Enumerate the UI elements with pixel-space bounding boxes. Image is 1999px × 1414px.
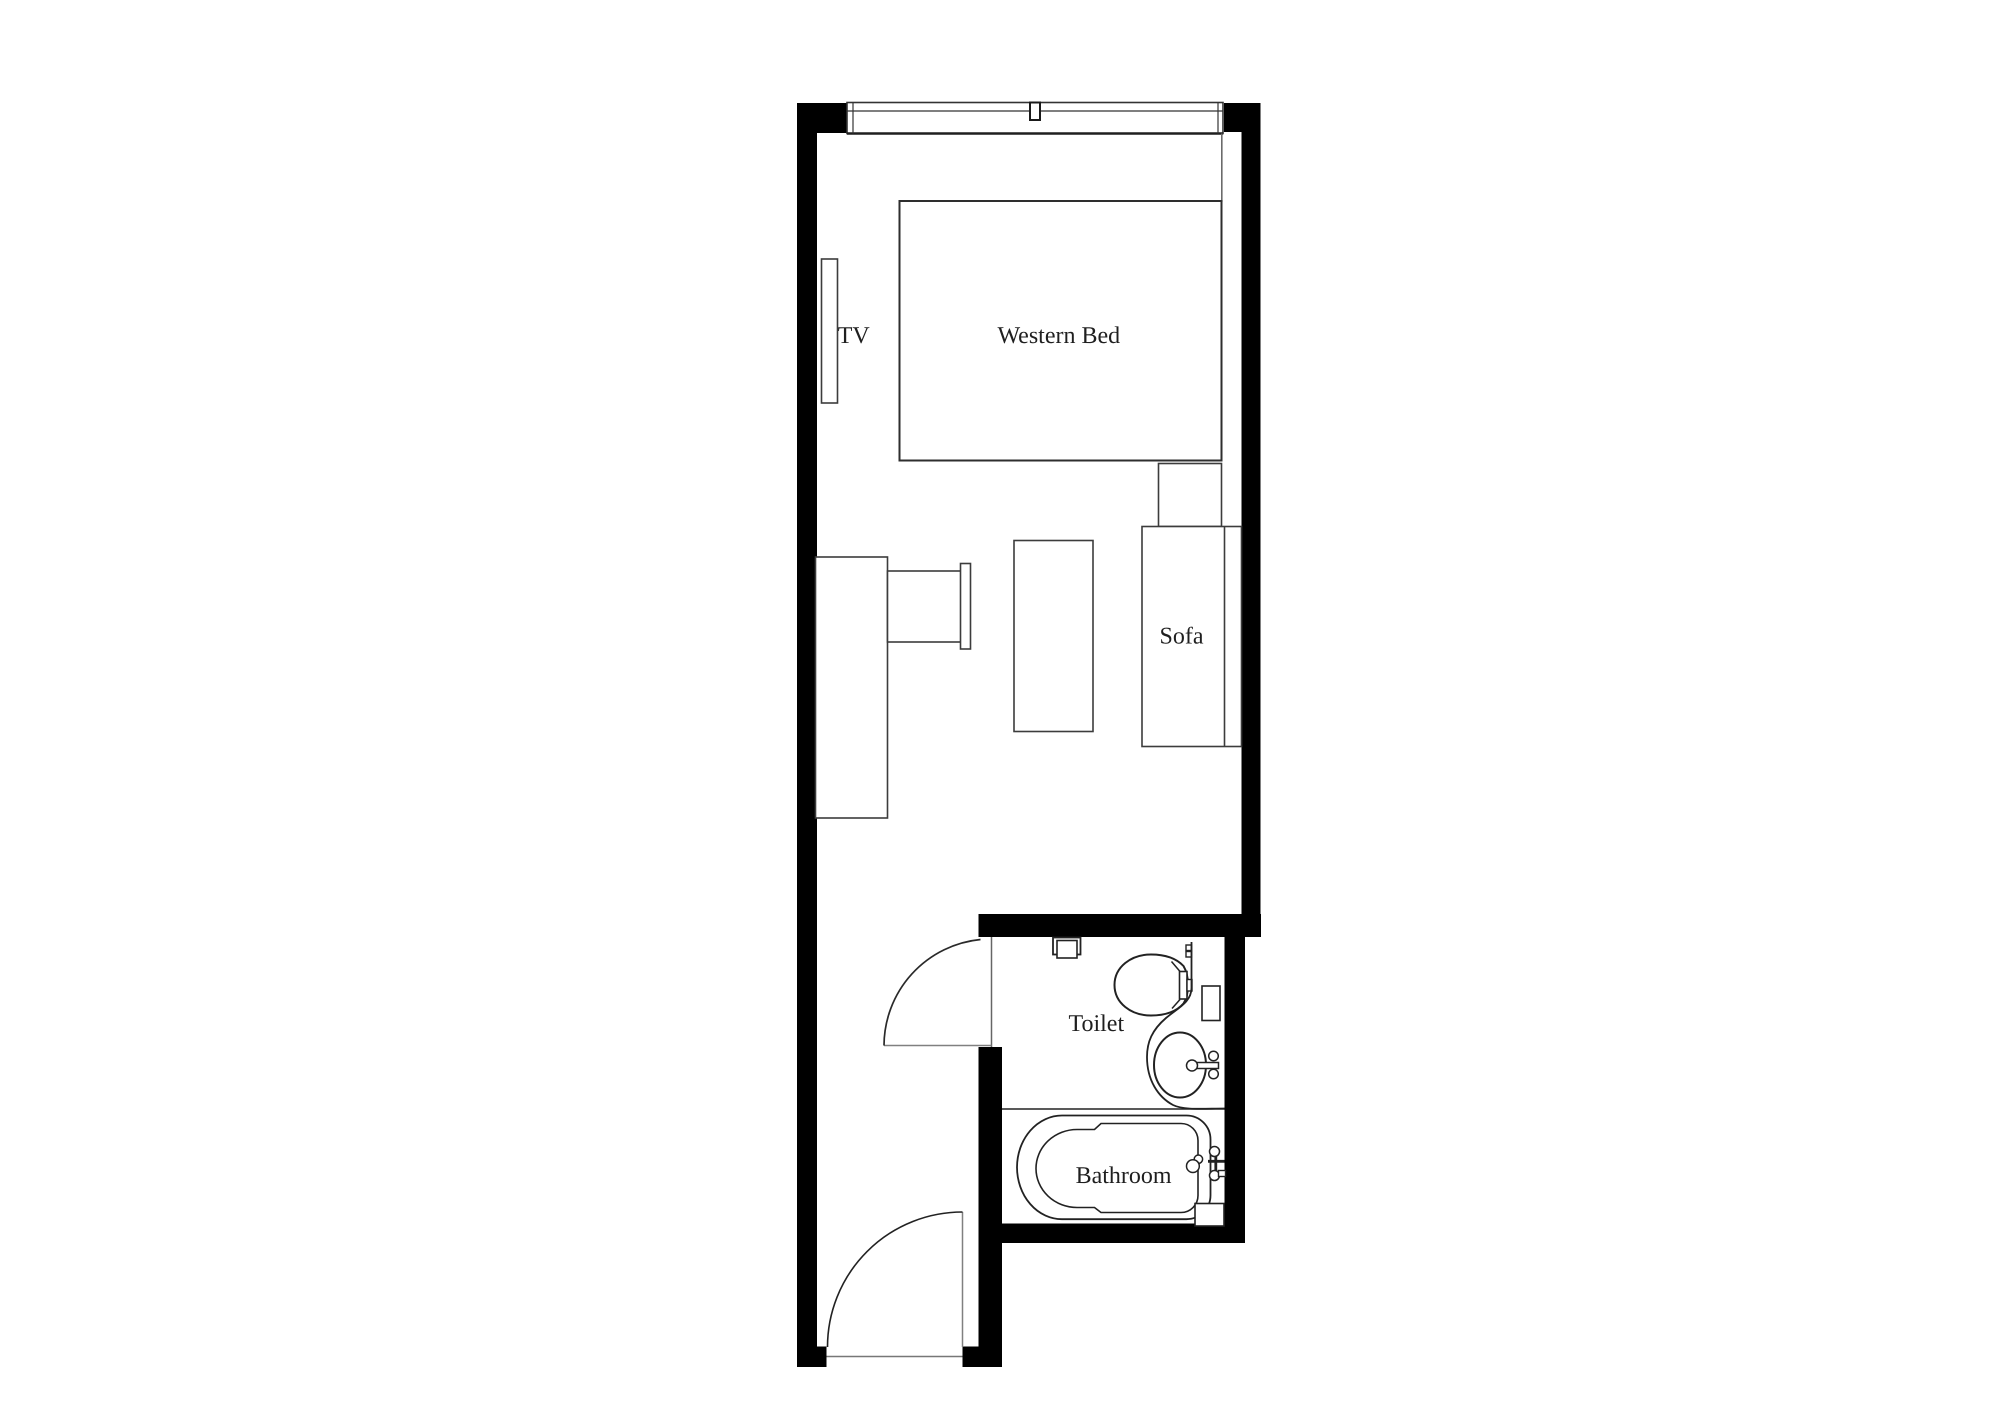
svg-text:Toilet: Toilet bbox=[1068, 1011, 1124, 1037]
svg-text:Sofa: Sofa bbox=[1160, 624, 1204, 650]
svg-text:TV: TV bbox=[838, 323, 871, 349]
svg-text:Bathroom: Bathroom bbox=[1076, 1163, 1172, 1189]
svg-text:Western Bed: Western Bed bbox=[997, 323, 1120, 349]
